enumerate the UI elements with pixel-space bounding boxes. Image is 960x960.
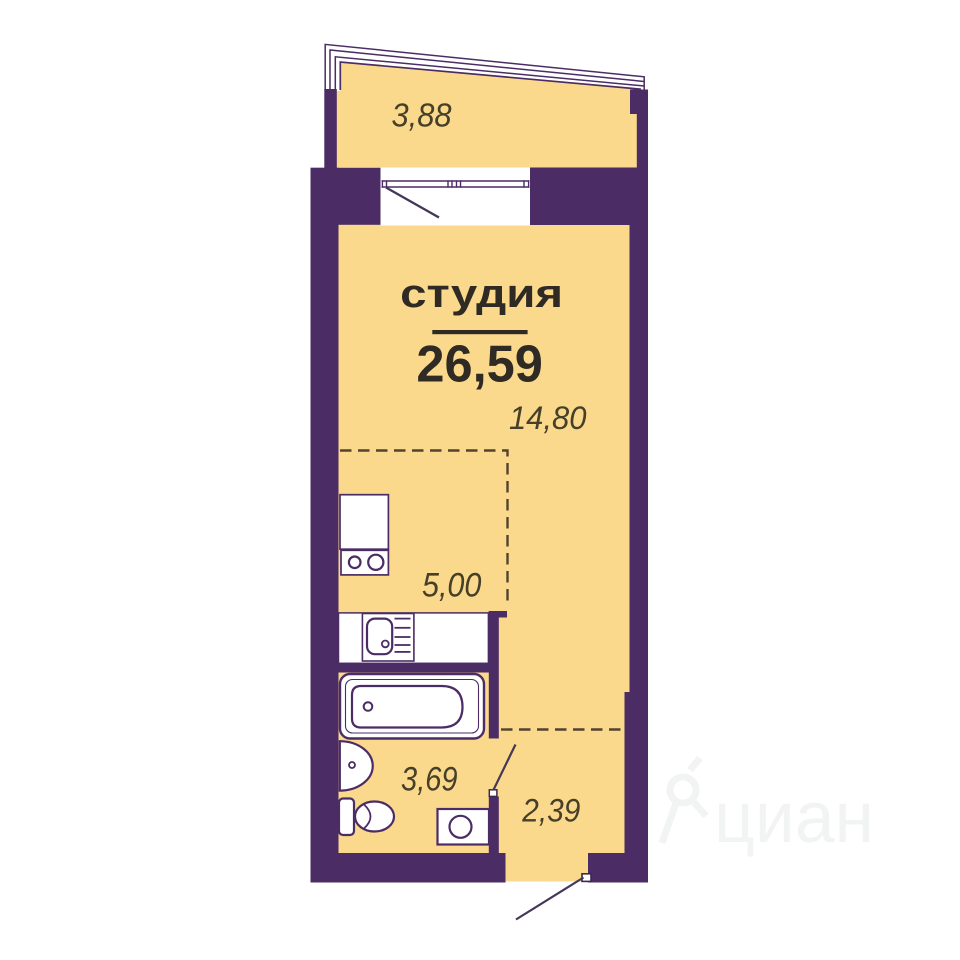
svg-text:3,88: 3,88 [392,97,452,134]
svg-text:14,80: 14,80 [509,400,587,436]
svg-text:2,39: 2,39 [521,792,580,828]
svg-text:3,69: 3,69 [401,761,458,799]
svg-text:студия: студия [400,272,563,316]
svg-text:26,59: 26,59 [416,336,543,394]
svg-text:5,00: 5,00 [422,566,482,604]
svg-text:циан: циан [714,778,874,858]
